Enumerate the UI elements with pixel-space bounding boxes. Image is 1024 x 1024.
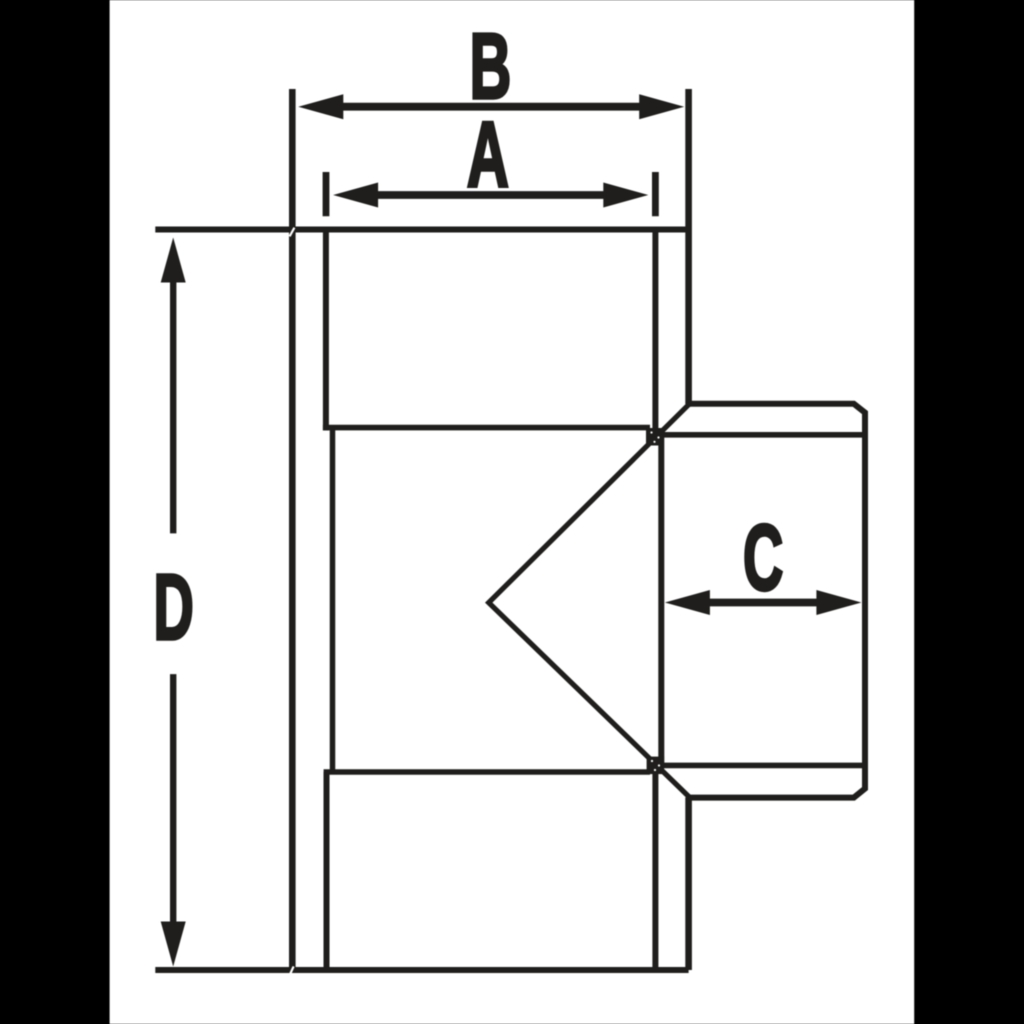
svg-text:C: C <box>743 507 783 610</box>
svg-text:D: D <box>154 557 194 660</box>
svg-text:B: B <box>470 15 512 118</box>
svg-text:A: A <box>467 104 509 207</box>
